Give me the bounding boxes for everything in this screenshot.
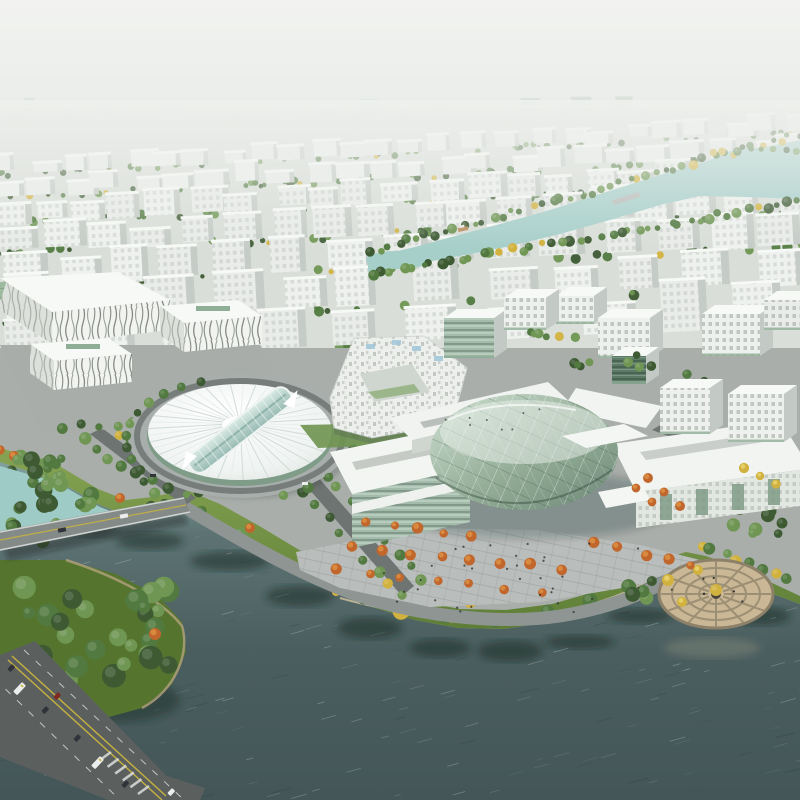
tree: [422, 262, 428, 268]
tree-highlight: [93, 446, 97, 450]
tree-highlight: [145, 399, 150, 404]
car: [302, 482, 308, 485]
autumn-tree-highlight: [396, 574, 400, 578]
autumn-tree-highlight: [440, 530, 444, 534]
block-windows: [405, 307, 449, 341]
person: [462, 546, 464, 548]
person: [434, 599, 436, 601]
tree-highlight: [118, 659, 124, 665]
east-wing-glass-panel: [660, 494, 672, 520]
autumn-tree-highlight: [246, 524, 251, 529]
tree-highlight: [16, 503, 21, 508]
person: [489, 544, 491, 546]
person: [671, 589, 673, 591]
tree-highlight: [123, 444, 127, 448]
tree-highlight: [775, 530, 779, 534]
office-side: [784, 385, 797, 442]
autumn-tree-highlight: [151, 629, 157, 635]
yellow-tree-highlight: [695, 566, 700, 571]
autumn-tree-highlight: [467, 532, 472, 537]
person: [417, 588, 419, 590]
tree-highlight: [332, 483, 336, 487]
person: [552, 587, 554, 589]
tree-highlight: [724, 550, 728, 554]
tree-highlight: [370, 271, 375, 276]
tree-highlight: [29, 466, 36, 473]
tree-highlight: [117, 462, 122, 467]
tree-highlight: [150, 489, 155, 494]
autumn-tree-highlight: [465, 556, 471, 562]
tree-highlight: [58, 456, 62, 460]
car: [150, 474, 156, 477]
tree-highlight: [763, 510, 769, 516]
autumn-tree-highlight: [643, 551, 649, 557]
masterplan-render: [0, 0, 800, 800]
person: [637, 547, 639, 549]
tree-highlight: [140, 603, 146, 609]
office-base: [764, 328, 800, 331]
person: [713, 577, 715, 579]
autumn-tree-highlight: [590, 538, 596, 544]
block-windows: [660, 280, 701, 333]
office-base: [612, 382, 646, 385]
autumn-tree-highlight: [439, 553, 444, 558]
person: [501, 429, 503, 431]
person: [515, 555, 517, 557]
autumn-tree-highlight: [676, 502, 681, 507]
tree-highlight: [758, 565, 763, 570]
office-front-windows: [504, 298, 546, 330]
tree-highlight: [42, 480, 48, 486]
tree-highlight: [65, 591, 74, 600]
tree-highlight: [127, 421, 131, 425]
person: [542, 560, 544, 562]
block-windows: [157, 247, 192, 277]
tree-highlight: [460, 257, 464, 261]
person: [539, 594, 541, 596]
tree-highlight: [375, 568, 380, 573]
autumn-tree-highlight: [665, 554, 671, 560]
tree-highlight: [683, 371, 687, 375]
autumn-tree-highlight: [496, 559, 501, 564]
tree-highlight: [648, 577, 653, 582]
tree: [134, 409, 142, 417]
autumn-tree-highlight: [116, 494, 121, 499]
east-wing-glass-panel: [732, 484, 744, 510]
tree-highlight: [153, 606, 159, 612]
tree-highlight: [105, 667, 116, 678]
yellow-tree-highlight: [664, 576, 669, 581]
person: [511, 428, 513, 430]
person: [471, 567, 473, 569]
tree-highlight: [24, 608, 29, 613]
person: [550, 591, 552, 593]
block-windows: [258, 310, 299, 349]
person: [543, 556, 545, 558]
office-base: [660, 432, 710, 435]
person: [469, 417, 471, 419]
person: [383, 572, 385, 574]
tree-highlight: [402, 264, 407, 269]
tree-highlight: [712, 586, 717, 591]
person: [516, 564, 518, 566]
autumn-tree-highlight: [362, 518, 367, 523]
autumn-tree-highlight: [378, 546, 384, 552]
person: [591, 598, 593, 600]
tree-highlight: [88, 642, 97, 651]
autumn-tree-highlight: [367, 570, 371, 574]
tree: [183, 491, 190, 498]
person: [506, 568, 508, 570]
tree-highlight: [116, 432, 120, 436]
person: [522, 412, 524, 414]
roof-blue-panel: [366, 344, 375, 349]
canal-pond: [366, 251, 430, 269]
tree-highlight: [198, 378, 202, 382]
yellow-tree-highlight: [773, 481, 777, 485]
autumn-tree-highlight: [539, 589, 543, 593]
person: [455, 548, 457, 550]
person: [403, 591, 405, 593]
office-base: [702, 354, 760, 357]
tree-highlight: [126, 641, 132, 647]
person: [703, 593, 705, 595]
tree-highlight: [55, 479, 62, 486]
tree-highlight: [162, 658, 170, 666]
tree-highlight: [584, 595, 591, 602]
bank-reflection: [608, 608, 673, 623]
tree-highlight: [86, 499, 91, 504]
tree-highlight: [45, 456, 51, 462]
tree-highlight: [164, 484, 169, 489]
person: [588, 543, 590, 545]
tree-highlight: [535, 330, 539, 334]
tree-highlight: [439, 260, 444, 265]
person: [431, 565, 433, 567]
tree-highlight: [104, 455, 109, 460]
office-front-windows: [764, 300, 800, 330]
tree-highlight: [14, 456, 19, 461]
tree-highlight: [699, 543, 703, 547]
person: [396, 601, 398, 603]
render-canvas: [0, 0, 800, 800]
office-side: [710, 379, 723, 434]
person: [733, 590, 735, 592]
tree-highlight: [160, 390, 165, 395]
tree-highlight: [111, 631, 119, 639]
roof-blue-panel: [392, 340, 401, 345]
person: [519, 578, 521, 580]
tree-highlight: [147, 620, 156, 629]
tree: [633, 351, 641, 359]
roof-strip: [66, 344, 100, 349]
person: [741, 600, 743, 602]
person: [561, 576, 563, 578]
autumn-tree-highlight: [413, 523, 419, 529]
tree-highlight: [749, 530, 753, 534]
autumn-tree-highlight: [501, 586, 506, 591]
person: [573, 611, 575, 613]
autumn-tree-highlight: [613, 543, 618, 548]
tree: [95, 423, 102, 430]
tree-highlight: [359, 557, 363, 561]
tree-highlight: [25, 453, 33, 461]
person: [540, 577, 542, 579]
tree-highlight: [326, 474, 330, 478]
office-front-windows: [556, 296, 594, 324]
autumn-tree-highlight: [465, 580, 469, 584]
office-front-windows: [702, 314, 760, 356]
autumn-tree-highlight: [435, 577, 439, 581]
tree-highlight: [7, 522, 12, 527]
person: [470, 606, 472, 608]
tree-highlight: [142, 649, 153, 660]
tree: [585, 358, 593, 366]
tree-highlight: [636, 363, 640, 367]
tree-highlight: [399, 592, 403, 596]
autumn-tree-highlight: [633, 485, 637, 489]
block-windows: [334, 268, 369, 307]
tree-highlight: [705, 544, 710, 549]
person: [456, 607, 458, 609]
autumn-tree-highlight: [649, 499, 653, 503]
tree-highlight: [773, 570, 778, 575]
tree-highlight: [627, 589, 634, 596]
person: [539, 408, 541, 410]
tree-highlight: [123, 432, 127, 436]
tree-highlight: [68, 658, 78, 668]
person: [459, 610, 461, 612]
bank-reflection: [410, 639, 471, 658]
tree-highlight: [728, 520, 734, 526]
tree: [574, 361, 581, 368]
tree-highlight: [648, 362, 652, 366]
autumn-tree-highlight: [406, 551, 411, 556]
yellow-tree-highlight: [741, 464, 746, 469]
tree-highlight: [280, 492, 284, 496]
yellow-tree-highlight: [679, 598, 684, 603]
plaza-reflection: [664, 638, 760, 658]
tree-highlight: [76, 500, 81, 505]
tree-highlight: [745, 559, 750, 564]
office-front: [444, 318, 494, 358]
tree-highlight: [58, 424, 63, 429]
person: [420, 579, 422, 581]
bank-reflection: [477, 640, 542, 661]
block-windows: [284, 279, 320, 309]
tree-highlight: [81, 434, 87, 440]
tree-highlight: [623, 581, 629, 587]
tree-highlight: [128, 592, 138, 602]
tree-highlight: [39, 607, 49, 617]
tree-highlight: [384, 580, 389, 585]
block-windows: [618, 257, 652, 289]
tree-highlight: [115, 423, 119, 427]
bank-reflection: [338, 617, 403, 639]
tree-highlight: [778, 519, 783, 524]
tree-highlight: [336, 530, 340, 534]
tree-highlight: [396, 551, 401, 556]
autumn-tree-highlight: [688, 562, 692, 566]
autumn-tree-highlight: [392, 522, 396, 526]
east-wing-glass-panel: [696, 489, 708, 515]
person: [469, 424, 471, 426]
office-base: [556, 322, 594, 325]
person: [445, 419, 447, 421]
person: [527, 543, 529, 545]
yellow-tree-highlight: [757, 473, 761, 477]
autumn-tree-highlight: [526, 559, 532, 565]
autumn-tree-highlight: [332, 564, 338, 570]
autumn-tree-highlight: [644, 474, 649, 479]
tree-highlight: [327, 514, 331, 518]
office-base: [728, 440, 784, 443]
office-front-windows: [728, 394, 784, 442]
office-front-windows: [660, 388, 710, 434]
person: [463, 564, 465, 566]
tree-highlight: [782, 575, 787, 580]
tree-highlight: [16, 579, 26, 589]
tree-highlight: [408, 563, 412, 567]
person: [486, 419, 488, 421]
horizon-haze: [0, 100, 800, 250]
tree-highlight: [137, 466, 141, 470]
tree-highlight: [178, 384, 182, 388]
person: [557, 602, 559, 604]
office-base: [444, 356, 494, 359]
tree-highlight: [85, 489, 92, 496]
tree-highlight: [311, 501, 315, 505]
tree-highlight: [141, 478, 145, 482]
autumn-tree-highlight: [558, 566, 563, 571]
roof-strip: [196, 306, 230, 311]
tree-highlight: [57, 472, 61, 476]
tree-highlight: [45, 498, 52, 505]
bank-reflection: [545, 635, 615, 649]
roof-blue-panel: [412, 346, 421, 351]
roof-blue-panel: [434, 356, 443, 361]
tree-highlight: [386, 269, 390, 273]
person: [637, 587, 639, 589]
autumn-tree-highlight: [661, 488, 665, 492]
tree-highlight: [78, 421, 82, 425]
autumn-tree-highlight: [348, 542, 353, 547]
tree-highlight: [53, 615, 61, 623]
tree-highlight: [128, 456, 132, 460]
person: [702, 578, 704, 580]
tree-highlight: [624, 359, 629, 364]
